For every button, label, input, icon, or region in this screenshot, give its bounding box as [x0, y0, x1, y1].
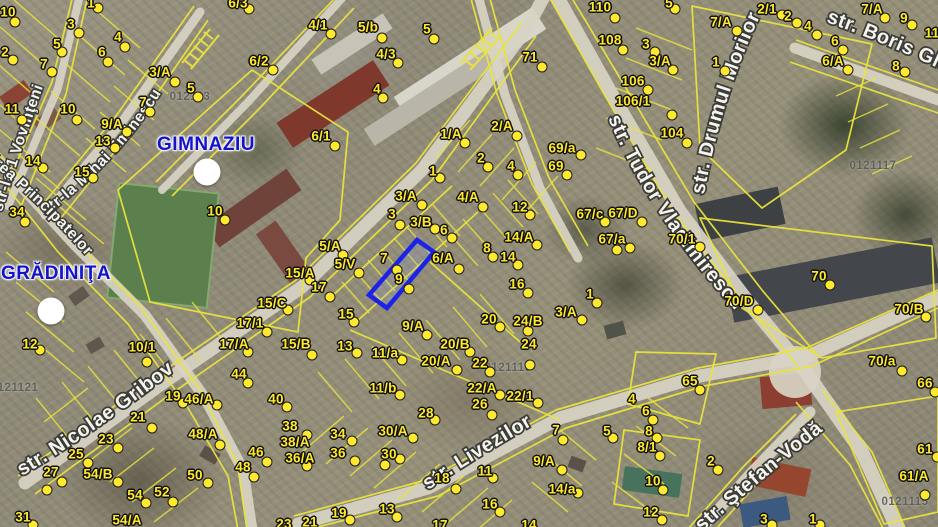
building-roof-green: [622, 466, 683, 498]
cadastral-map-viewport[interactable]: str-la 1 Vovinţeni str-la Mihai Eminescu…: [0, 0, 938, 527]
house-roof: [86, 337, 105, 355]
parcel-subdivision-line: [318, 294, 514, 412]
parcel-subdivision-line: [36, 302, 226, 440]
house-roof: [567, 456, 586, 473]
building-roof-blue: [739, 496, 790, 527]
parcel-subdivision-line: [448, 180, 538, 266]
parcel-subdivision-line: [532, 430, 596, 512]
map-overlay: str-la 1 Vovinţeni str-la Mihai Eminescu…: [0, 0, 938, 527]
street-label: str. Livezilor: [418, 410, 535, 494]
street-label: str. Drumul Morilor: [687, 8, 765, 195]
parcel-subdivision-line: [836, 78, 912, 174]
house-roof: [199, 445, 221, 464]
street-label-text: str. Livezilor: [418, 410, 535, 494]
street-label-text: str. Drumul Morilor: [687, 8, 765, 195]
parcel-subdivision-line: [6, 252, 84, 382]
house-roof: [604, 321, 627, 340]
house-roof: [68, 286, 90, 306]
school-building-roof: [205, 169, 302, 248]
selected-parcel-outline[interactable]: [369, 240, 434, 308]
